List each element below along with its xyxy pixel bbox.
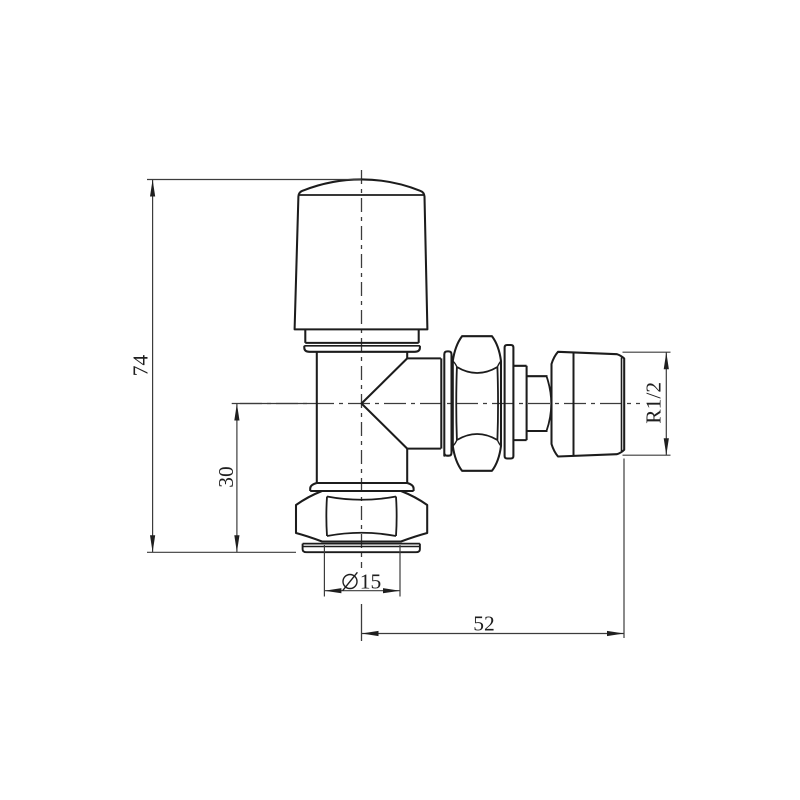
svg-text:30: 30 — [214, 466, 238, 488]
svg-text:R1/2: R1/2 — [641, 382, 665, 424]
svg-text:74: 74 — [128, 355, 152, 377]
svg-text:52: 52 — [473, 612, 495, 636]
svg-text:15: 15 — [360, 570, 382, 594]
